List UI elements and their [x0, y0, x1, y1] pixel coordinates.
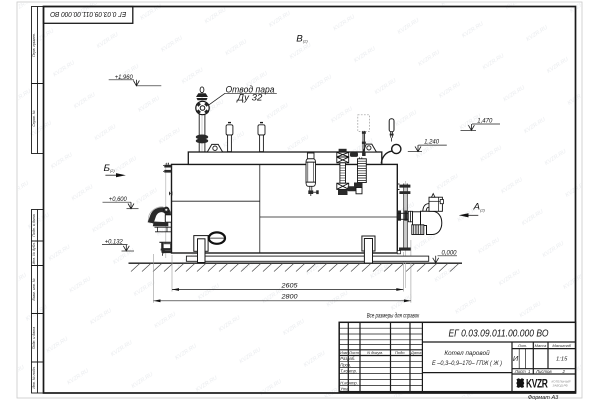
svg-text:Масштаб: Масштаб [552, 343, 571, 348]
svg-text:Лист: Лист [514, 369, 526, 374]
svg-text:(2): (2) [480, 207, 486, 212]
svg-text:Инв. № подл.: Инв. № подл. [32, 366, 36, 388]
svg-text:Изм: Изм [340, 350, 348, 355]
svg-text:Взам. инв. №: Взам. инв. № [32, 278, 36, 300]
svg-text:Т.контр.: Т.контр. [340, 368, 357, 373]
svg-text:Ду 32: Ду 32 [236, 93, 263, 104]
svg-text:Инв. № дубл.: Инв. № дубл. [32, 242, 36, 264]
svg-text:Дата: Дата [410, 350, 422, 355]
svg-text:2605: 2605 [280, 282, 298, 289]
svg-text:N докум.: N докум. [367, 350, 383, 355]
svg-text:1,470: 1,470 [477, 118, 492, 125]
svg-text:Подп. и дата: Подп. и дата [32, 327, 36, 350]
svg-text:KVZR: KVZR [526, 379, 548, 391]
svg-text:Разраб.: Разраб. [340, 356, 355, 361]
svg-text:Е –0,3–0,9–170– ГПЖ ( Ж ): Е –0,3–0,9–170– ГПЖ ( Ж ) [432, 360, 502, 367]
svg-text:А: А [472, 202, 480, 213]
svg-text:1,240: 1,240 [424, 139, 439, 146]
svg-text:Котел паровой: Котел паровой [444, 349, 490, 357]
svg-text:И: И [513, 354, 519, 363]
svg-text:1:15: 1:15 [556, 357, 568, 363]
svg-text:Листов: Листов [535, 369, 552, 374]
svg-text:(2): (2) [110, 168, 116, 173]
svg-text:Справ. №: Справ. № [32, 110, 36, 126]
svg-text:Все размеры для справок: Все размеры для справок [367, 313, 420, 319]
svg-text:Лит.: Лит. [517, 343, 527, 348]
svg-text:0,000: 0,000 [442, 249, 457, 256]
svg-text:Н.контр.: Н.контр. [340, 381, 358, 386]
svg-text:Подп.: Подп. [395, 350, 406, 355]
svg-text:ЕГ 0.03.09.011.00.000 ВО: ЕГ 0.03.09.011.00.000 ВО [50, 10, 126, 19]
svg-text:2800: 2800 [280, 293, 298, 300]
svg-text:Подп. и дата: Подп. и дата [32, 214, 36, 237]
svg-text:Формат А3: Формат А3 [528, 395, 559, 400]
svg-text:ЕГ 0.03.09.011.00.000 ВО: ЕГ 0.03.09.011.00.000 ВО [449, 328, 549, 340]
svg-text:Лист: Лист [348, 350, 360, 355]
svg-text:Масса: Масса [535, 343, 548, 348]
svg-text:+0,600: +0,600 [109, 196, 127, 203]
svg-text:(2): (2) [303, 38, 309, 43]
svg-text:ЗАВОД РФ: ЗАВОД РФ [553, 383, 569, 387]
svg-text:Утв.: Утв. [340, 387, 350, 392]
svg-text:Перв. примен.: Перв. примен. [32, 33, 36, 57]
svg-text:Пров.: Пров. [340, 362, 351, 367]
